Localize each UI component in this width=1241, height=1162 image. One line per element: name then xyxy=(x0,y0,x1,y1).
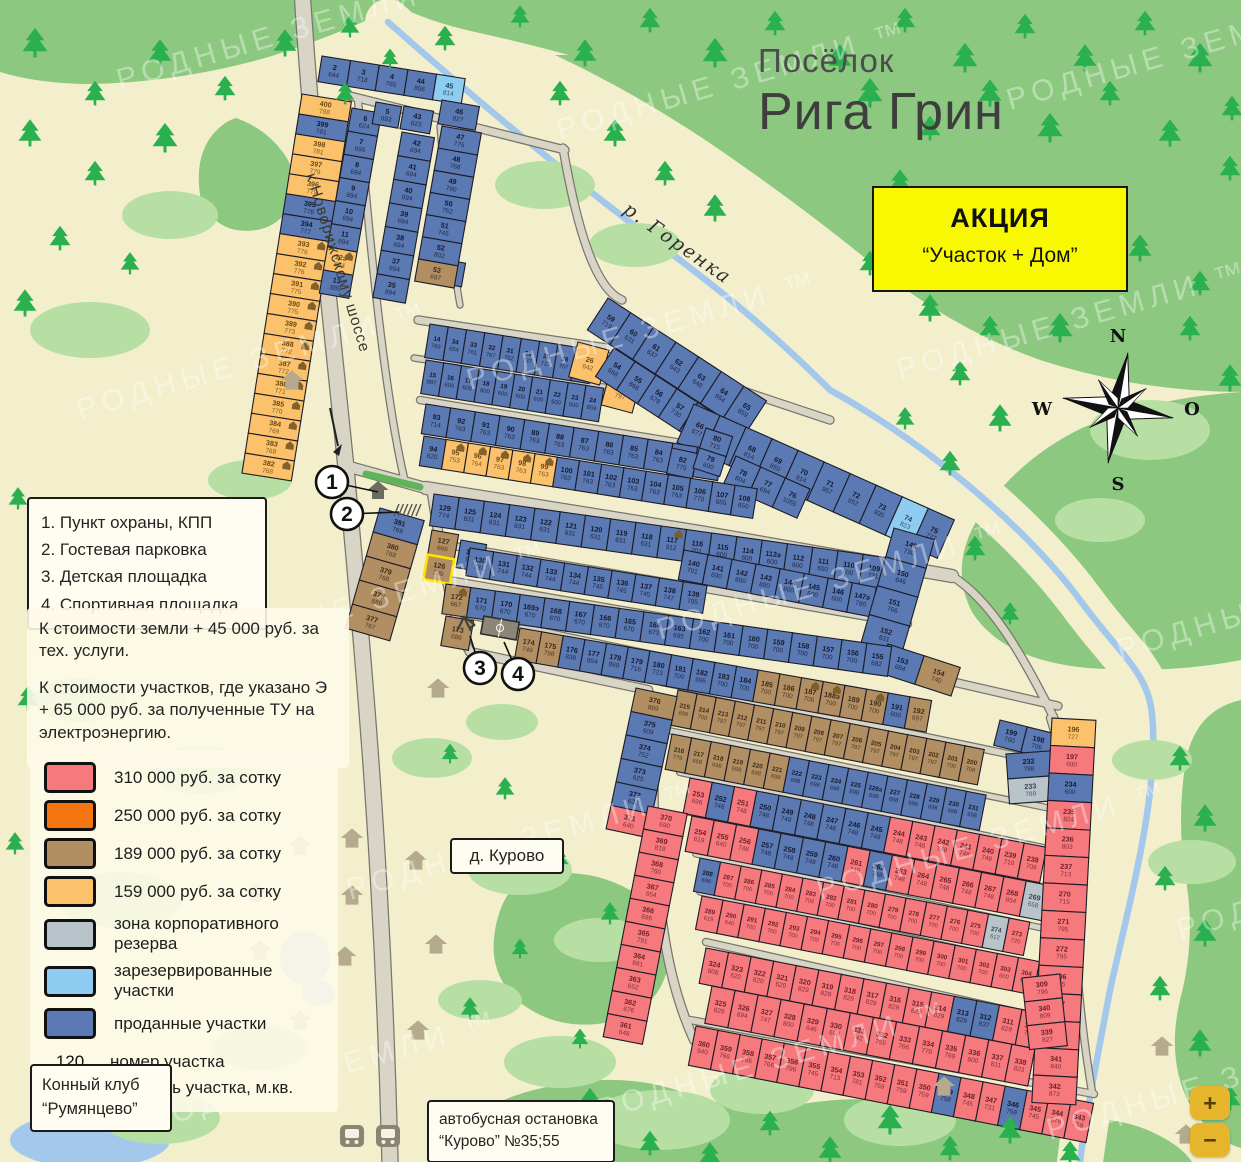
legend-label-7: проданные участки xyxy=(114,1014,266,1034)
price-legend-row: 189 000 руб. за сотку xyxy=(44,838,324,869)
tree-icon xyxy=(85,81,106,106)
callout-number-1: 1 xyxy=(326,471,338,494)
promo-line2: “Участок + Дом” xyxy=(874,244,1126,268)
compass-letter-e: O xyxy=(1184,399,1200,420)
svg-text:196: 196 xyxy=(1067,724,1079,734)
svg-text:272: 272 xyxy=(1056,944,1068,954)
village-house-icon xyxy=(425,934,447,953)
svg-text:342: 342 xyxy=(1049,1081,1061,1091)
svg-text:827: 827 xyxy=(1042,1036,1054,1044)
tree-icon xyxy=(704,194,727,221)
horse-club-line2: “Румянцево” xyxy=(42,1098,160,1122)
bus-stop-line2: “Курово” №35;55 xyxy=(439,1131,603,1153)
bus-stop-icon xyxy=(376,1125,400,1147)
promo-banner: АКЦИЯ “Участок + Дом” xyxy=(872,186,1128,292)
bus-stop-line1: автобусная остановка xyxy=(439,1109,603,1131)
tree-icon xyxy=(50,226,71,251)
tree-icon xyxy=(215,76,236,101)
tree-icon xyxy=(989,404,1012,431)
svg-text:271: 271 xyxy=(1057,917,1069,927)
price-legend-row: зона корпоративного резерва xyxy=(44,914,324,954)
village-house-icon xyxy=(427,678,449,697)
bus-stop-icon xyxy=(340,1125,364,1147)
poi-item-1: 1. Пункт охраны, КПП xyxy=(41,509,253,536)
svg-text:715: 715 xyxy=(1059,898,1071,906)
poi-item-2: 2. Гостевая парковка xyxy=(41,536,253,563)
tree-icon xyxy=(496,777,515,799)
tree-icon xyxy=(153,123,178,153)
horse-club-line1: Конный клуб xyxy=(42,1074,160,1098)
tree-icon xyxy=(1150,976,1171,1001)
legend-label-6: зарезервированные участки xyxy=(114,961,324,1001)
price-legend: 310 000 руб. за сотку250 000 руб. за сот… xyxy=(30,750,338,1112)
svg-text:713: 713 xyxy=(1060,871,1072,879)
svg-text:873: 873 xyxy=(1049,1091,1061,1099)
svg-text:798: 798 xyxy=(1023,766,1035,774)
svg-text:809: 809 xyxy=(1039,1012,1051,1020)
price-legend-row: 159 000 руб. за сотку xyxy=(44,876,324,907)
callout-number-3: 3 xyxy=(474,657,486,680)
legend-swatch-1 xyxy=(44,762,96,793)
svg-text:803: 803 xyxy=(1062,843,1074,851)
svg-text:840: 840 xyxy=(1050,1063,1062,1071)
zoom-in-button[interactable]: + xyxy=(1190,1086,1230,1120)
village-house-icon xyxy=(1151,1036,1173,1055)
title-prefix: Посёлок xyxy=(758,42,1004,80)
legend-swatch-2 xyxy=(44,800,96,831)
legend-swatch-4 xyxy=(44,876,96,907)
title-name: Рига Грин xyxy=(758,82,1004,142)
bus-stop-label: автобусная остановка “Курово” №35;55 xyxy=(427,1100,615,1162)
settlement-title: Посёлок Рига Грин xyxy=(758,42,1004,142)
legend-swatch-5 xyxy=(44,919,96,950)
price-legend-row: 310 000 руб. за сотку xyxy=(44,762,324,793)
map-page: 4007883997813987813977793967793957783947… xyxy=(0,0,1241,1162)
legend-label-3: 189 000 руб. за сотку xyxy=(114,844,281,864)
compass-letter-s: S xyxy=(1112,474,1125,495)
legend-label-5: зона корпоративного резерва xyxy=(114,914,324,954)
horse-club-label: Конный клуб “Румянцево” xyxy=(30,1064,172,1132)
tree-icon xyxy=(19,119,42,146)
cost-notes: К стоимости земли + 45 000 руб. за тех. … xyxy=(27,608,349,768)
cost-note-2: К стоимости участков, где указано Э + 65… xyxy=(39,677,337,744)
svg-text:237: 237 xyxy=(1060,862,1072,872)
svg-text:795: 795 xyxy=(1056,953,1068,961)
svg-text:796: 796 xyxy=(1037,988,1049,996)
svg-text:600: 600 xyxy=(1066,761,1078,769)
svg-text:600: 600 xyxy=(1065,789,1077,797)
compass-letter-w: W xyxy=(1031,399,1053,420)
tree-icon xyxy=(85,161,106,186)
svg-text:270: 270 xyxy=(1059,889,1071,899)
legend-label-2: 250 000 руб. за сотку xyxy=(114,806,281,826)
tree-icon xyxy=(655,161,676,186)
svg-text:197: 197 xyxy=(1066,752,1078,762)
village-label: д. Курово xyxy=(450,838,564,874)
callout-number-2: 2 xyxy=(341,503,353,526)
legend-swatch-6 xyxy=(44,966,96,997)
callout-number-4: 4 xyxy=(512,663,524,686)
tree-icon xyxy=(121,252,140,274)
cost-note-1: К стоимости земли + 45 000 руб. за тех. … xyxy=(39,618,337,663)
price-legend-row: проданные участки xyxy=(44,1008,324,1039)
village-house-icon xyxy=(341,828,363,847)
poi-item-3: 3. Детская площадка xyxy=(41,563,253,590)
tree-icon xyxy=(6,832,25,854)
zoom-out-button[interactable]: − xyxy=(1190,1123,1230,1157)
legend-swatch-3 xyxy=(44,838,96,869)
legend-swatch-7 xyxy=(44,1008,96,1039)
tree-icon xyxy=(550,81,571,106)
price-legend-row: зарезервированные участки xyxy=(44,961,324,1001)
svg-text:789: 789 xyxy=(1025,790,1037,798)
price-legend-row: 250 000 руб. за сотку xyxy=(44,800,324,831)
legend-label-4: 159 000 руб. за сотку xyxy=(114,882,281,902)
legend-label-1: 310 000 руб. за сотку xyxy=(114,768,281,788)
svg-text:234: 234 xyxy=(1064,779,1076,789)
svg-text:727: 727 xyxy=(1067,734,1079,742)
svg-text:795: 795 xyxy=(1057,926,1069,934)
promo-line1: АКЦИЯ xyxy=(874,203,1126,234)
tree-icon xyxy=(9,487,28,509)
compass-letter-n: N xyxy=(1110,326,1126,347)
tree-icon xyxy=(14,289,37,316)
svg-text:341: 341 xyxy=(1050,1054,1062,1064)
